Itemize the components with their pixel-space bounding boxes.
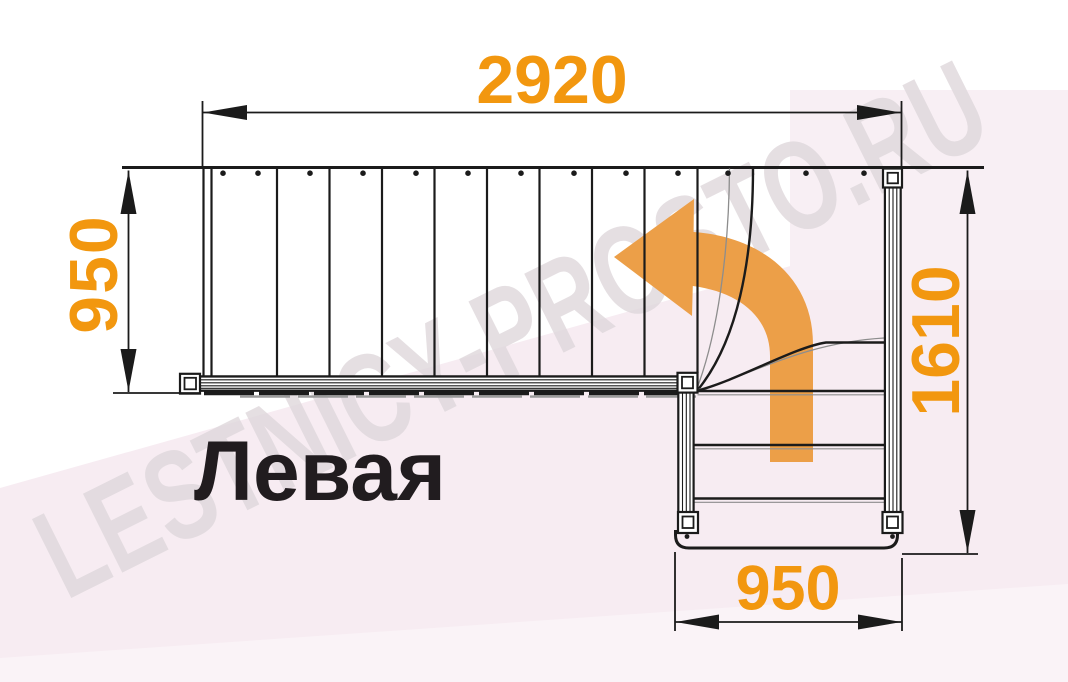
- floor-dot: [890, 534, 895, 539]
- tread-lines: [204, 169, 698, 377]
- floor-dot: [685, 534, 690, 539]
- stringer-band: [200, 376, 700, 397]
- baluster-dots: [220, 170, 867, 176]
- left-stringer: [678, 393, 695, 513]
- bottom-floor-edge: [676, 530, 898, 548]
- dimension-label-bottom-width: 950: [735, 558, 840, 621]
- main-flight: [122, 168, 984, 397]
- diagram-title: Левая: [194, 429, 446, 513]
- dimension-label-top-width: 2920: [476, 46, 627, 114]
- dimension-label-right-length: 1610: [902, 265, 970, 416]
- stair-plan-diagram: LESTNICY-PROSTO.RU: [0, 0, 1068, 682]
- dimension-label-left-depth: 950: [60, 214, 128, 333]
